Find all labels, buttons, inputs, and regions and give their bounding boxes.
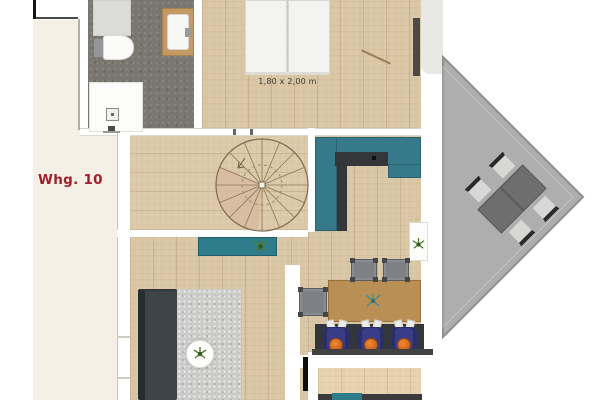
dining-chair xyxy=(299,288,327,316)
door-frame-mark xyxy=(250,129,253,135)
cooktop-knob xyxy=(372,156,376,160)
spiral-staircase xyxy=(215,138,309,232)
window-mark xyxy=(117,336,130,338)
wall-bathroom-bedroom xyxy=(194,0,202,128)
kitchen-counter-step xyxy=(388,164,421,178)
bed-foot-shadow xyxy=(245,72,330,75)
door-frame-mark xyxy=(233,129,236,135)
basin-faucet xyxy=(185,28,192,37)
window-mark xyxy=(117,377,130,379)
wall-stair-kitchen xyxy=(308,128,315,232)
bed-mattress-right xyxy=(288,0,330,74)
plant-icon xyxy=(192,346,208,362)
bedroom-radiator xyxy=(413,18,420,76)
lower-teal-counter xyxy=(332,393,362,400)
wall-living-dining xyxy=(285,265,300,400)
shower-drain-dot xyxy=(111,113,114,116)
lower-room-floor xyxy=(318,368,422,395)
plant-icon xyxy=(411,237,426,252)
toilet xyxy=(103,35,134,60)
table-plant-icon xyxy=(362,292,384,310)
bed-mattress-left xyxy=(245,0,287,74)
boundary-line-left xyxy=(78,19,80,130)
dining-chair xyxy=(383,259,409,281)
tv-panel xyxy=(303,357,308,391)
outside-area-left xyxy=(33,20,78,400)
dining-chair xyxy=(351,259,377,281)
floor-plan: 1,80 x 2,00 m xyxy=(0,0,600,400)
shower-tap-bar xyxy=(103,131,120,133)
shower xyxy=(89,82,143,132)
plant-icon xyxy=(252,238,269,255)
neighbor-wall-line xyxy=(36,17,78,19)
bed-size-label: 1,80 x 2,00 m xyxy=(240,77,335,88)
outside-area-left-lower xyxy=(78,130,118,400)
bath-mat xyxy=(93,0,131,36)
kitchen-counter-left xyxy=(315,137,337,231)
wall-sill-bottom xyxy=(300,355,435,368)
sofa xyxy=(138,289,177,400)
kitchen-appliance-column xyxy=(337,155,347,231)
unit-label: Whg. 10 xyxy=(38,172,108,188)
wall-outer-left xyxy=(117,133,130,400)
